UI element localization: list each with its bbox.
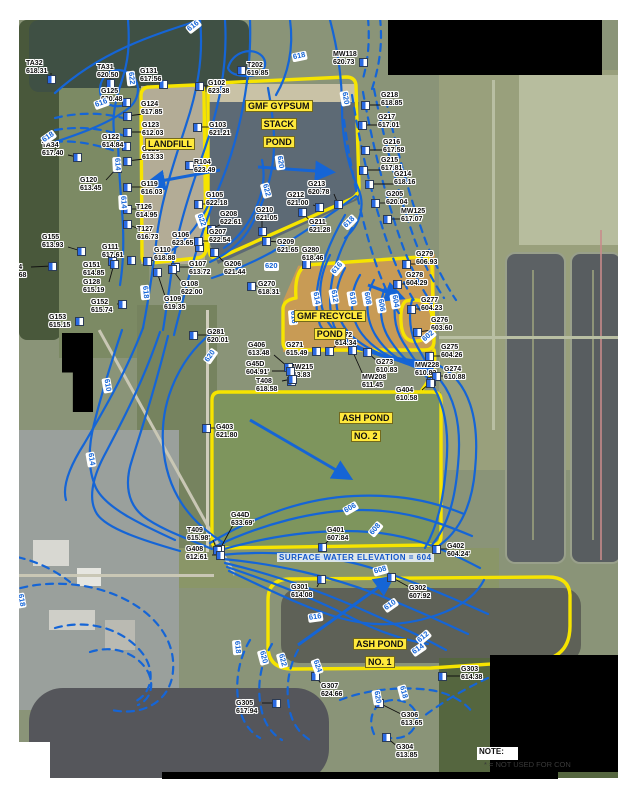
well-label-G131: G131617.56 [140,68,161,83]
well-marker-G109 [153,268,162,277]
well-marker-G281 [189,331,198,340]
contour-elevation-label: 608 [372,564,388,576]
contour-elevation-label: 608 [367,521,383,538]
well-marker-G209 [262,237,271,246]
well-marker-G402 [432,545,441,554]
well-marker-G124 [123,112,132,121]
well-marker-G211 [298,208,307,217]
area-label-gmf-recycle-pond: GMF RECYCLEPOND [294,306,366,342]
well-marker-G218 [361,101,370,110]
area-label-ash-pond-no-1: ASH PONDNO. 1 [353,634,407,670]
well-marker-G105 [194,200,203,209]
well-label-G102: G102623.38 [208,80,229,95]
contour-elevation-label: 618 [16,592,27,608]
well-marker-TA31 [106,79,115,88]
well-label-G211: G211621.28 [309,219,330,234]
well-marker-G304 [382,733,391,742]
well-label-T409: T409615.98' [187,527,210,542]
well-label-G155: G155613.93 [42,234,63,249]
well-marker-G128 [110,260,119,269]
well-marker-G207 [194,237,203,246]
well-label-G218: G218618.85 [381,92,402,107]
well-marker-G212 [315,203,324,212]
well-label-G281: G281620.01 [207,329,228,344]
contour-elevation-label: 622 [276,652,288,668]
well-marker-G215 [359,166,368,175]
well-label-G217: G217617.01 [378,114,399,129]
well-label-G275: G275604.26 [441,344,462,359]
well-marker-G273 [363,348,372,357]
well-marker-G270 [247,282,256,291]
well-marker-G303 [438,672,447,681]
well-label-G119: G119616.03 [141,181,162,196]
well-label-G277: G277604.23 [421,297,442,312]
well-marker-G119 [123,183,132,192]
well-marker-G277 [407,305,416,314]
well-label-G216: G216617.58 [383,139,404,154]
contour-elevation-label: 618 [140,285,150,300]
well-marker-R104 [185,161,194,170]
well-label-T202: T202619.85 [247,62,268,77]
well-label-G274: G274610.88 [444,366,465,381]
well-label-G280: G280618.46 [302,247,323,262]
well-marker-G125 [122,98,131,107]
well-marker-G103 [193,123,202,132]
well-label-G106: G106623.65 [172,232,193,247]
well-marker-G102 [195,82,204,91]
contour-elevation-label: 614 [86,451,97,467]
contour-elevation-label: 614 [311,290,322,306]
well-marker-G275 [425,352,434,361]
well-label-G270: G270618.31 [258,281,279,296]
well-marker-G279 [402,260,411,269]
well-label-G206: G206621.44 [224,261,245,276]
well-label-G122: G122614.84 [102,134,123,149]
well-label-MW125: MW125617.07 [401,208,425,223]
well-marker-G110 [143,257,152,266]
well-marker-G153 [75,317,84,326]
note-body: * = NOT USED FOR CON [484,760,571,769]
well-marker-T202 [237,66,246,75]
well-label-G210: G210621.05 [256,207,277,222]
well-label-G213: G213620.78 [308,181,329,196]
well-label-TA31: TA31620.50 [97,64,118,79]
well-label-G278: G278604.29 [406,272,427,287]
contour-elevation-label: 620 [275,154,285,170]
well-marker-MW208 [348,346,357,355]
well-marker-G152 [118,300,127,309]
area-label-gmf-gypsum-stack-pond: GMF GYPSUMSTACKPOND [245,96,313,150]
well-marker-G302 [387,573,396,582]
contour-elevation-label: 606 [376,297,387,313]
well-label-G305: G305617.94 [236,700,257,715]
contour-elevation-label: 620 [257,649,269,665]
well-marker-G408 [216,551,225,560]
contour-elevation-label: 608 [362,290,373,306]
well-marker-MW118 [359,58,368,67]
contour-elevation-label: 606 [342,501,359,516]
well-marker-G121 [123,157,132,166]
well-label-G209: G209621.65 [277,239,298,254]
well-label-G403: G403621.80 [216,424,237,439]
note-title: NOTE: [477,747,518,760]
well-marker-G278 [393,280,402,289]
contour-elevation-label: 616 [185,18,202,34]
well-label-G301: G301614.08 [291,584,312,599]
well-marker-G210 [258,227,267,236]
well-marker-G301 [317,575,326,584]
well-marker-G111 [127,256,136,265]
surface-water-elevation-label: SURFACE WATER ELEVATION = 604 [277,553,434,562]
well-label-G307: G307624.66 [321,683,342,698]
well-label-T126: T126614.95 [136,204,157,219]
well-marker-G154 [48,262,57,271]
contour-elevation-label: 618 [397,684,409,700]
well-label-G279: G279606.93 [416,251,437,266]
contour-elevation-label: 612 [329,288,340,304]
well-label-G151: G151614.85 [83,262,104,277]
well-marker-G213 [334,200,343,209]
well-label-G103: G103621.21 [209,122,230,137]
contour-elevation-label: 616 [93,97,110,110]
contour-elevation-label: 610 [382,598,399,613]
area-label-landfill: LANDFILL [145,134,195,152]
well-label-R104: R104623.49 [194,159,215,174]
well-marker-G401 [318,543,327,552]
contour-elevation-label: 610 [347,290,358,306]
contour-elevation-label: 604 [390,293,401,309]
well-label-G205: G205620.04 [386,191,407,206]
well-marker-G108 [168,265,177,274]
contour-elevation-label: 620 [264,262,279,271]
well-label-G215: G215617.81 [381,157,402,172]
contour-elevation-label: 620 [340,90,351,106]
well-label-G44D: G44D633.69' [231,512,254,527]
contour-elevation-label: 610 [102,377,113,393]
well-label-G306: G306613.65 [401,712,422,727]
well-label-G304: G304613.85 [396,744,417,759]
well-label-G214: G214618.16 [394,171,415,186]
well-label-G108: G108622.00 [181,281,202,296]
well-label-G45D: G45D604.91' [246,361,269,376]
well-marker-G404 [426,379,435,388]
contour-elevation-label: 616 [307,612,323,622]
map-overlay: SURFACE WATER ELEVATION = 604 TA32618.31… [0,0,618,800]
contour-elevation-label: 616 [329,260,345,277]
contour-elevation-label: 620 [372,689,383,705]
contour-elevation-label: 622 [126,71,136,86]
well-label-T408: T408618.58 [256,378,277,393]
well-label-G402: G402604.24' [447,543,470,558]
contour-elevation-label: 618 [341,214,357,230]
well-label-G153: G153615.15 [49,314,70,329]
well-label-G404: G404610.58 [396,387,417,402]
well-label-MW208: MW208611.45 [362,374,386,389]
well-marker-G205 [371,199,380,208]
well-marker-MW125 [383,215,392,224]
contour-elevation-label: 622 [195,212,208,229]
contour-elevation-label: 614 [113,157,122,172]
well-label-G406: G406613.48 [248,342,269,357]
contour-elevation-label: 622 [260,182,272,198]
well-label-G128: G128615.19 [83,279,104,294]
well-label-G302: G302607.92 [409,585,430,600]
well-label-G110: G110618.88 [154,247,175,262]
groundwater-contour-site-map: SURFACE WATER ELEVATION = 604 TA32618.31… [0,0,618,800]
well-marker-TA32 [47,75,56,84]
well-label-MW118: MW118620.73 [333,51,357,66]
well-label-G154: G154614.68 [5,264,26,279]
area-label-ash-pond-no-2: ASH PONDNO. 2 [339,408,393,444]
contour-elevation-label: 614 [119,195,128,210]
well-label-G401: G401607.84 [327,527,348,542]
contour-elevation-label: 614 [410,642,427,657]
well-marker-T127 [123,220,132,229]
well-marker-G155 [77,247,86,256]
well-label-G105: G105622.18 [206,192,227,207]
well-label-G212: G212621.00 [287,192,308,207]
well-label-G124: G124617.85 [141,101,162,116]
well-marker-G217 [358,121,367,130]
well-marker-TA34 [73,153,82,162]
well-label-G152: G152615.74 [91,299,112,314]
well-label-G107: G107613.72 [189,261,210,276]
well-label-G208: G208622.61 [220,211,241,226]
well-marker-G403 [202,424,211,433]
well-marker-T408 [288,375,297,384]
well-marker-G305 [272,699,281,708]
well-marker-G272 [325,347,334,356]
well-label-G109: G109619.35 [164,296,185,311]
well-label-G273: G273610.83 [376,359,397,374]
well-marker-G216 [361,146,370,155]
contour-elevation-label: 620 [203,348,218,365]
well-label-G207: G207622.54 [209,229,230,244]
well-marker-G123 [123,128,132,137]
well-label-G408: G408612.61 [186,546,207,561]
contour-elevation-label: 618 [291,51,307,62]
well-label-G303: G303614.38 [461,666,482,681]
contour-elevation-label: 618 [232,640,242,655]
well-label-G276: G276603.60 [431,317,452,332]
well-label-G120: G120613.45 [80,177,101,192]
well-label-T127: T127616.73 [137,226,158,241]
well-marker-G214 [365,180,374,189]
well-label-G271: G271615.49 [286,342,307,357]
well-label-TA32: TA32618.31 [26,60,47,75]
well-marker-G206 [210,248,219,257]
well-marker-G271 [312,347,321,356]
